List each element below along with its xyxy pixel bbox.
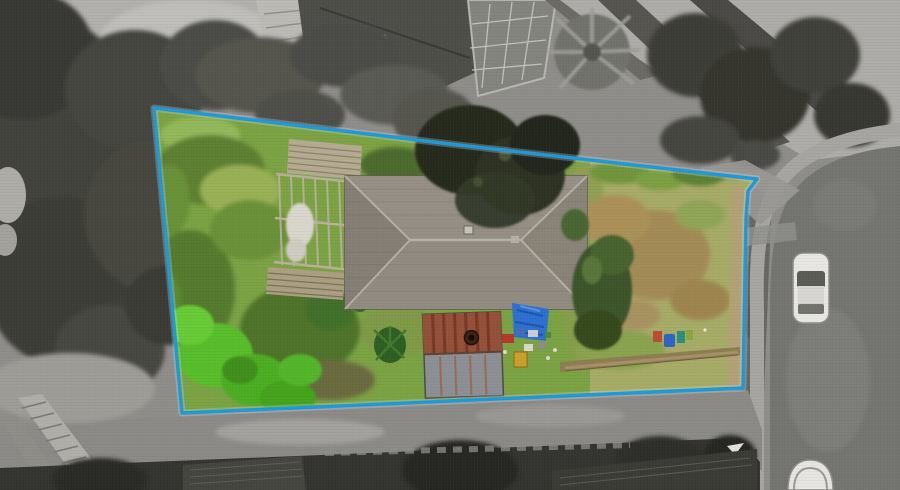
aerial-property-photo — [0, 0, 900, 490]
aerial-scene — [0, 0, 900, 490]
rusty-shed — [423, 312, 504, 399]
yellow-crate — [514, 352, 527, 367]
roof-vent — [511, 236, 519, 243]
chimney — [464, 226, 473, 234]
timber-deck-upper — [287, 139, 362, 180]
parked-car — [793, 253, 829, 323]
